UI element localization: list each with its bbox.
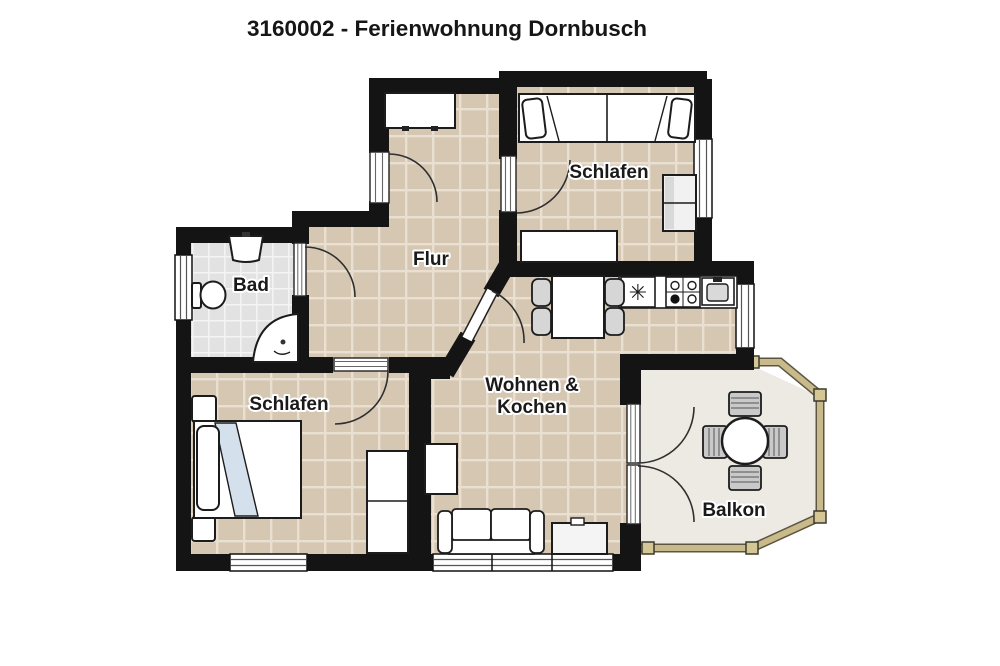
sideboard-bedroom-top xyxy=(521,231,617,262)
balcony-table xyxy=(722,418,768,464)
tv-sideboard xyxy=(552,518,607,554)
window-bedroom-bottom xyxy=(230,554,307,571)
dining-table xyxy=(552,276,604,338)
balcony-chair xyxy=(729,466,761,490)
sofa-seat xyxy=(445,540,538,554)
room-label-schlafen-bottom: Schlafen xyxy=(249,394,328,415)
floorplan-drawing: ✳ xyxy=(0,0,1000,666)
room-label-balkon: Balkon xyxy=(702,500,765,521)
room-label-schlafen-top: Schlafen xyxy=(569,162,648,183)
kitchen-sink xyxy=(702,277,734,305)
sofa xyxy=(438,509,544,554)
pillow xyxy=(668,98,693,139)
freezer-icon: ✳ xyxy=(629,281,647,306)
bath-sink xyxy=(229,232,263,262)
wardrobe-bedroom-bottom xyxy=(367,451,408,553)
room-label-wohnen-kochen-line2: Kochen xyxy=(497,397,567,418)
window-living xyxy=(433,554,613,571)
balcony-chair xyxy=(729,392,761,416)
window-kitchen xyxy=(736,284,754,348)
dining-chair xyxy=(605,308,624,335)
window-bath xyxy=(175,255,192,320)
toilet xyxy=(192,282,226,309)
hall-wardrobe xyxy=(385,93,455,131)
sofa-armrest xyxy=(438,511,452,553)
floorplan-page: ✳ xyxy=(0,0,1000,666)
plan-title: 3160002 - Ferienwohnung Dornbusch xyxy=(247,16,647,41)
bed-twin xyxy=(519,94,695,142)
stove xyxy=(666,277,700,307)
room-label-wohnen-kochen-line1: Wohnen & xyxy=(485,375,579,396)
dining-chair xyxy=(605,279,624,306)
room-label-bad: Bad xyxy=(233,275,269,296)
side-cabinet-living xyxy=(425,444,457,494)
nightstand xyxy=(192,396,216,422)
sofa-back-cushion xyxy=(452,509,491,541)
wardrobe-bedroom-top xyxy=(663,175,696,231)
pillow xyxy=(522,98,547,139)
freezer: ✳ xyxy=(621,277,655,307)
bed-double xyxy=(194,421,301,518)
dining-chair xyxy=(532,308,551,335)
room-label-flur: Flur xyxy=(413,249,449,270)
dining-chair xyxy=(532,279,551,306)
sofa-armrest xyxy=(530,511,544,553)
pillow xyxy=(197,426,219,510)
sofa-back-cushion xyxy=(491,509,530,541)
nightstand xyxy=(192,517,215,541)
